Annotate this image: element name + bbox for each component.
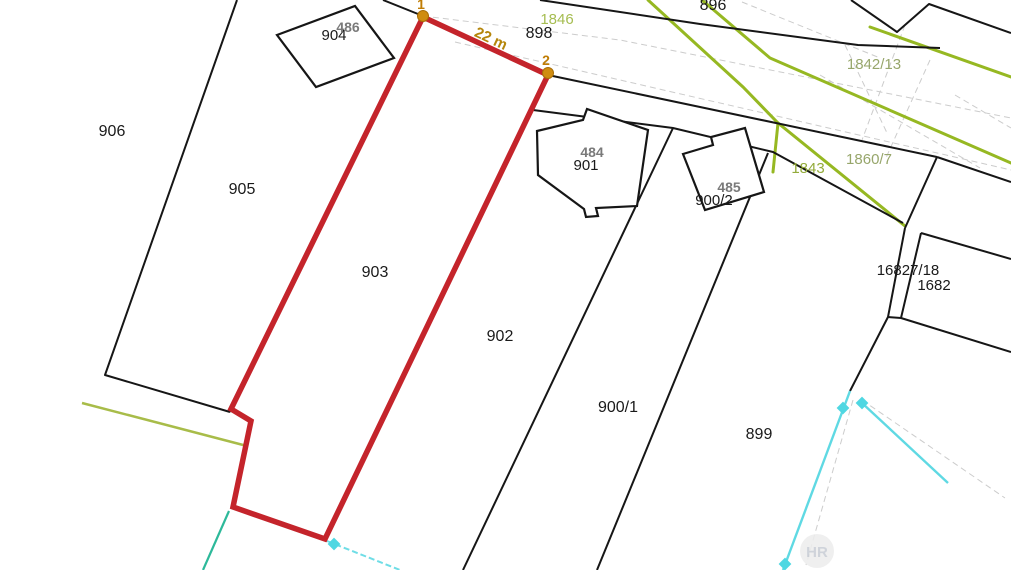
map-label-parcel-900-1: 900/1	[598, 399, 638, 416]
boundary-lines-layer	[105, 0, 1011, 570]
map-label-building-486: 486	[336, 19, 360, 35]
map-label-parcel-1860-7: 1860/7	[846, 151, 892, 168]
map-label-parcel-906: 906	[99, 123, 126, 140]
watermark-text: HR	[806, 544, 828, 561]
map-label-point-1: 1	[417, 0, 425, 12]
map-label-parcel-1682: 1682	[917, 277, 950, 294]
map-label-parcel-903: 903	[362, 264, 389, 281]
vertex-point-1	[418, 11, 429, 22]
map-label-parcel-1846: 1846	[540, 11, 573, 28]
map-label-parcel-1842-13: 1842/13	[847, 56, 901, 73]
new-state-lines	[203, 391, 948, 570]
map-label-parcel-902: 902	[487, 328, 514, 345]
highlighted-parcel-outline[interactable]	[231, 17, 548, 539]
map-label-building-485: 485	[717, 179, 741, 195]
map-label-building-484: 484	[580, 144, 604, 160]
watermark-badge: HR	[800, 534, 834, 568]
map-label-parcel-905: 905	[229, 181, 256, 198]
map-canvas[interactable]: 906905903902900/189989889690448690148490…	[0, 0, 1011, 570]
map-label-parcel-1843: 1843	[791, 160, 824, 177]
map-label-parcel-896: 896	[700, 0, 727, 14]
cyan-diamond-markers	[328, 397, 869, 570]
vertex-point-2	[543, 68, 554, 79]
map-label-point-2: 2	[542, 52, 550, 68]
map-viewport: 906905903902900/189989889690448690148490…	[0, 0, 1011, 570]
map-label-parcel-899: 899	[746, 426, 773, 443]
